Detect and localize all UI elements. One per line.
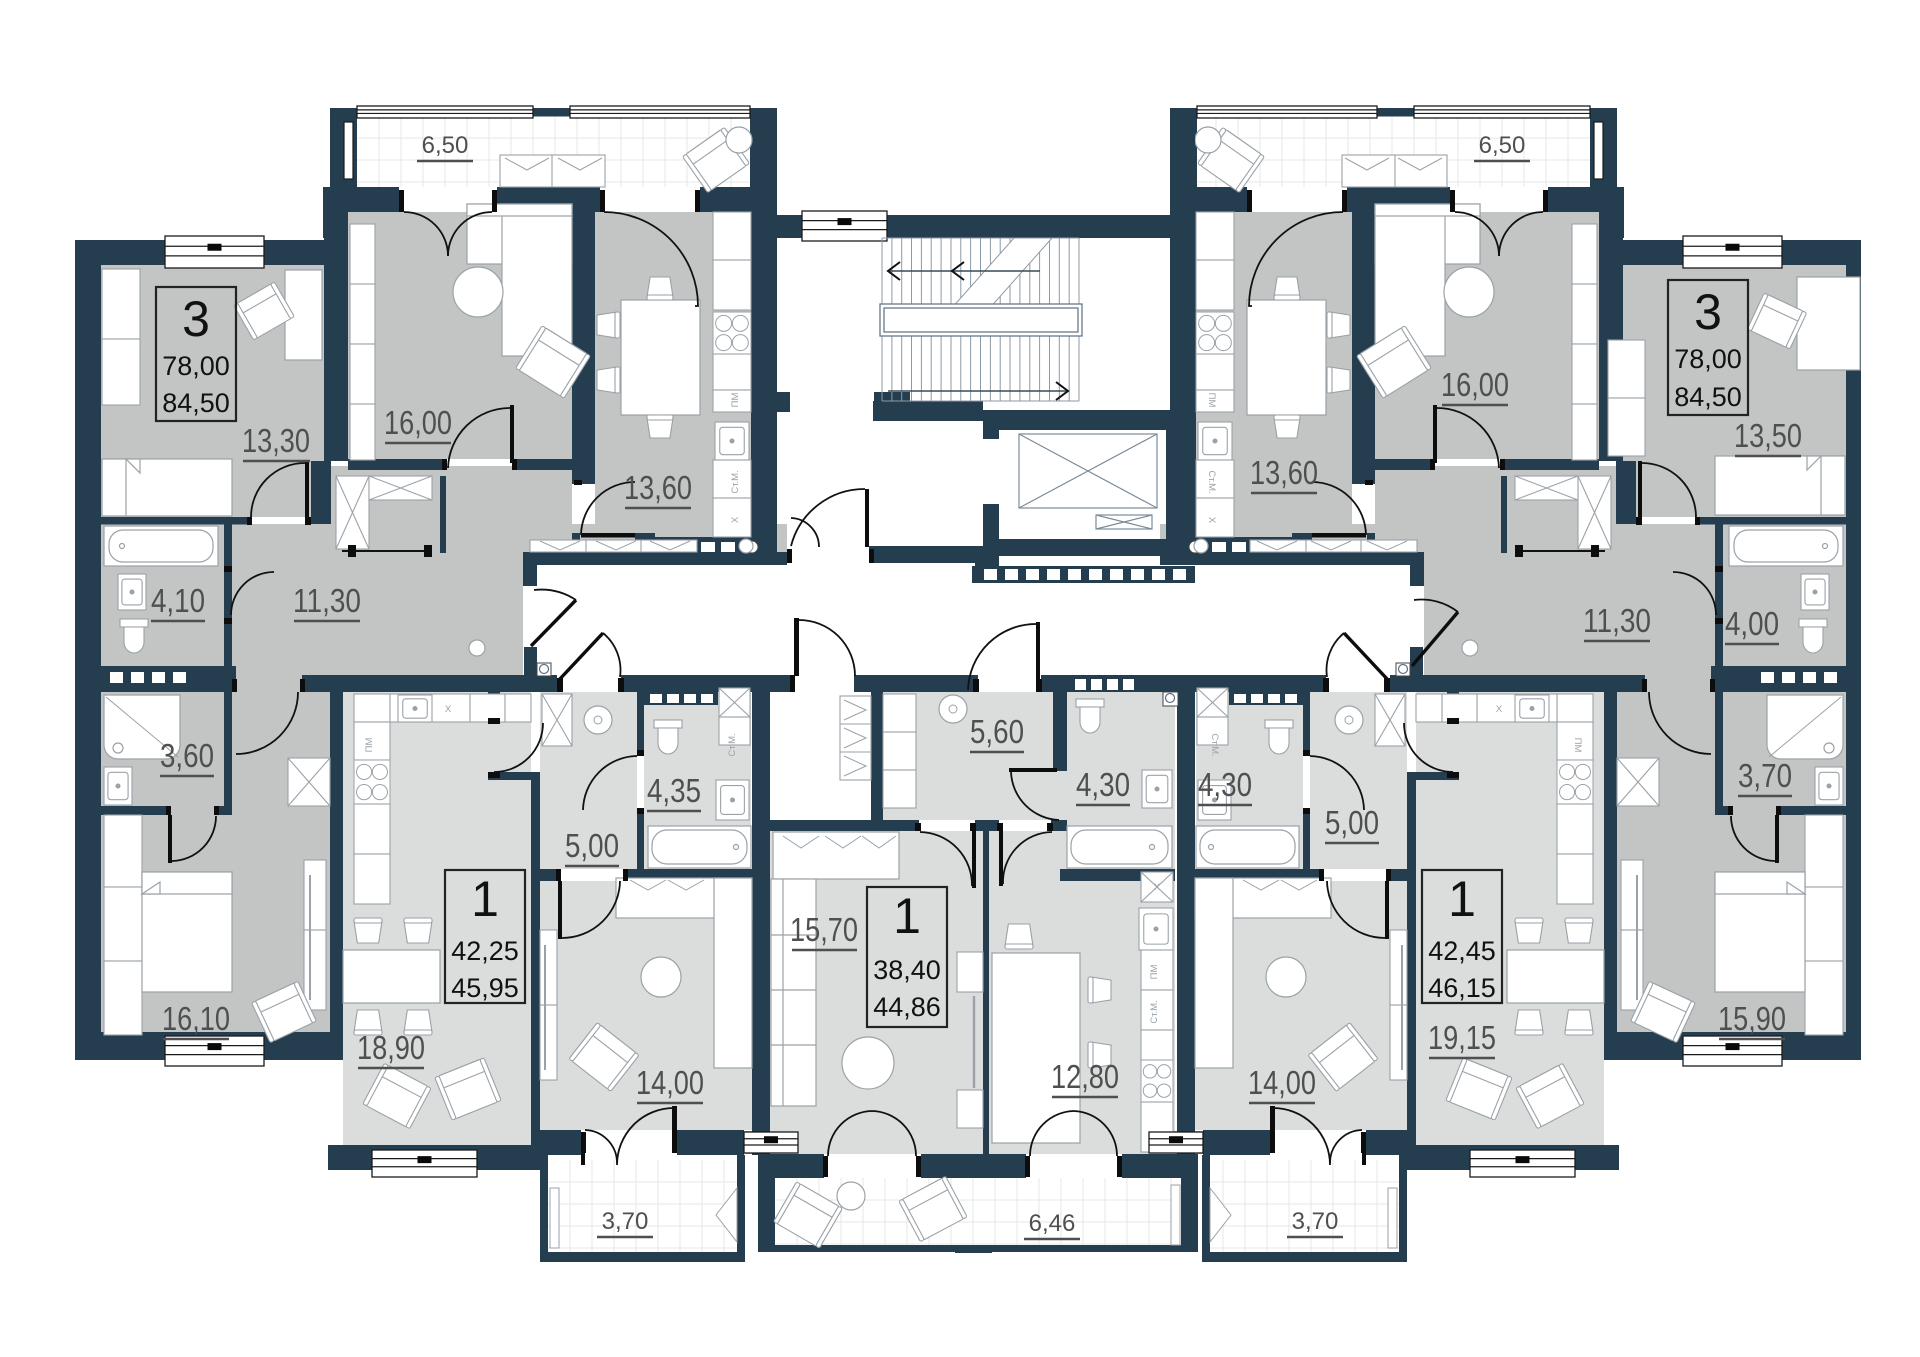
svg-text:3: 3 bbox=[182, 291, 210, 347]
svg-text:5,00: 5,00 bbox=[565, 827, 619, 864]
svg-text:3,70: 3,70 bbox=[1292, 1208, 1339, 1235]
svg-text:11,30: 11,30 bbox=[1583, 602, 1651, 639]
svg-text:4,00: 4,00 bbox=[1725, 605, 1779, 642]
svg-text:Ст.М.: Ст.М. bbox=[727, 733, 738, 756]
svg-text:5,60: 5,60 bbox=[970, 713, 1024, 750]
svg-text:ПМ: ПМ bbox=[364, 738, 375, 753]
svg-text:16,00: 16,00 bbox=[1441, 366, 1509, 403]
svg-text:ПМ: ПМ bbox=[1572, 738, 1583, 753]
svg-text:46,15: 46,15 bbox=[1428, 973, 1496, 1003]
svg-text:6,50: 6,50 bbox=[422, 132, 469, 159]
svg-text:4,30: 4,30 bbox=[1076, 766, 1130, 803]
svg-text:4,10: 4,10 bbox=[151, 582, 205, 619]
svg-text:13,60: 13,60 bbox=[624, 469, 692, 506]
svg-text:12,80: 12,80 bbox=[1051, 1058, 1119, 1095]
svg-text:1: 1 bbox=[471, 871, 499, 927]
svg-text:13,30: 13,30 bbox=[242, 422, 310, 459]
svg-text:18,90: 18,90 bbox=[357, 1029, 425, 1066]
svg-text:X: X bbox=[1496, 704, 1503, 715]
svg-text:14,00: 14,00 bbox=[636, 1064, 704, 1101]
svg-text:Ст.М.: Ст.М. bbox=[1149, 1000, 1160, 1023]
svg-text:ПМ: ПМ bbox=[1149, 965, 1160, 980]
svg-text:5,00: 5,00 bbox=[1325, 804, 1379, 841]
svg-text:3,60: 3,60 bbox=[160, 737, 214, 774]
svg-text:X: X bbox=[730, 516, 741, 523]
svg-text:3: 3 bbox=[1694, 284, 1722, 340]
svg-text:38,40: 38,40 bbox=[873, 955, 941, 985]
svg-text:15,70: 15,70 bbox=[790, 911, 858, 948]
svg-text:78,00: 78,00 bbox=[162, 351, 230, 381]
svg-text:84,50: 84,50 bbox=[1674, 382, 1742, 412]
svg-text:1: 1 bbox=[1448, 871, 1476, 927]
svg-text:16,00: 16,00 bbox=[384, 404, 452, 441]
svg-text:13,60: 13,60 bbox=[1250, 454, 1318, 491]
svg-text:Ст.М.: Ст.М. bbox=[1209, 733, 1220, 756]
svg-text:Ст.М.: Ст.М. bbox=[1206, 470, 1217, 493]
svg-text:ПМ: ПМ bbox=[730, 393, 741, 408]
svg-text:19,15: 19,15 bbox=[1428, 1019, 1496, 1056]
svg-text:15,90: 15,90 bbox=[1718, 1000, 1786, 1037]
svg-text:1: 1 bbox=[893, 888, 921, 944]
svg-text:13,50: 13,50 bbox=[1734, 417, 1802, 454]
svg-text:X: X bbox=[1154, 882, 1161, 893]
svg-text:11,30: 11,30 bbox=[293, 582, 361, 619]
svg-text:42,45: 42,45 bbox=[1428, 936, 1496, 966]
svg-text:45,95: 45,95 bbox=[451, 973, 519, 1003]
svg-text:4,35: 4,35 bbox=[647, 772, 701, 809]
svg-text:4,30: 4,30 bbox=[1198, 766, 1252, 803]
svg-text:X: X bbox=[445, 704, 452, 715]
svg-text:6,50: 6,50 bbox=[1479, 132, 1526, 159]
svg-text:6,46: 6,46 bbox=[1029, 1210, 1076, 1237]
svg-text:X: X bbox=[1206, 517, 1217, 524]
svg-text:42,25: 42,25 bbox=[451, 936, 519, 966]
svg-text:84,50: 84,50 bbox=[162, 388, 230, 418]
svg-text:ПМ: ПМ bbox=[1206, 393, 1217, 408]
svg-text:44,86: 44,86 bbox=[873, 992, 941, 1022]
svg-text:3,70: 3,70 bbox=[602, 1208, 649, 1235]
svg-text:3,70: 3,70 bbox=[1738, 757, 1792, 794]
svg-text:Ст.М.: Ст.М. bbox=[730, 470, 741, 493]
svg-text:16,10: 16,10 bbox=[162, 1000, 230, 1037]
svg-text:14,00: 14,00 bbox=[1248, 1064, 1316, 1101]
svg-text:78,00: 78,00 bbox=[1674, 344, 1742, 374]
